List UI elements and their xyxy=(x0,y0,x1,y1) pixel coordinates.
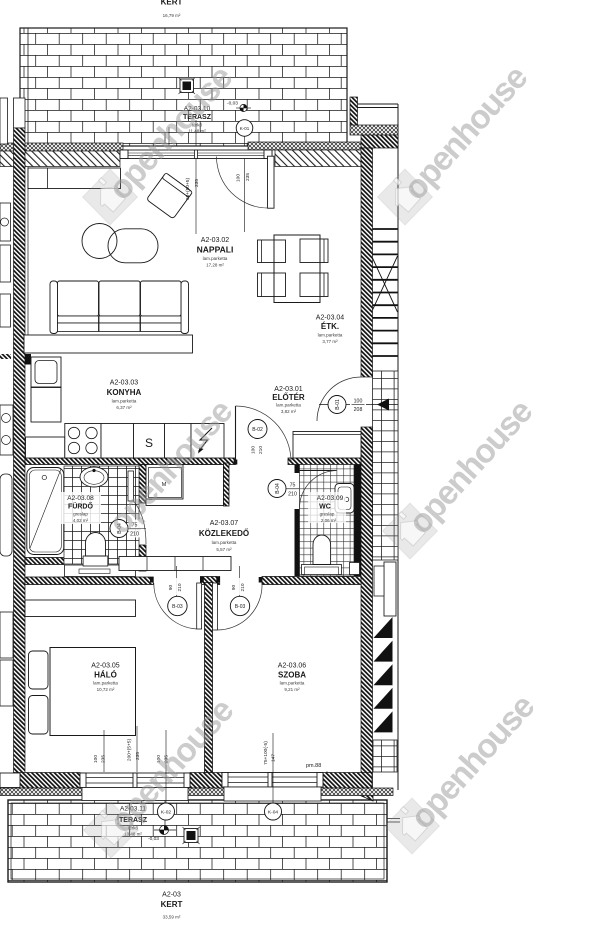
svg-text:lam.parketta: lam.parketta xyxy=(318,333,343,338)
svg-text:33,59 m²: 33,59 m² xyxy=(163,915,181,920)
svg-text:WC: WC xyxy=(319,504,331,511)
svg-text:lam.parketta: lam.parketta xyxy=(280,681,305,686)
svg-text:FÜRDŐ: FÜRDŐ xyxy=(68,502,93,511)
svg-text:A2-03.03: A2-03.03 xyxy=(110,380,139,387)
svg-text:A2-03.02: A2-03.02 xyxy=(201,237,230,244)
svg-text:A2-03.07: A2-03.07 xyxy=(210,520,239,527)
svg-text:235: 235 xyxy=(245,173,251,181)
svg-text:B-03: B-03 xyxy=(172,604,183,610)
svg-text:B-01: B-01 xyxy=(335,399,341,410)
svg-text:KERT: KERT xyxy=(161,0,183,7)
svg-text:90+(50+5): 90+(50+5) xyxy=(185,178,191,201)
svg-text:-0,03: -0,03 xyxy=(148,836,159,842)
svg-text:lam.parketta: lam.parketta xyxy=(276,403,301,408)
svg-text:K-04: K-04 xyxy=(268,810,278,816)
svg-text:SZOBA: SZOBA xyxy=(278,671,306,680)
svg-text:greslap: greslap xyxy=(320,512,335,517)
svg-text:17,28 m²: 17,28 m² xyxy=(206,263,224,268)
svg-text:A2-03.06: A2-03.06 xyxy=(278,663,307,670)
svg-text:-0,03: -0,03 xyxy=(227,101,238,107)
svg-text:200+(5+5): 200+(5+5) xyxy=(127,739,133,762)
svg-text:greslap: greslap xyxy=(73,512,88,517)
svg-text:HÁLÓ: HÁLÓ xyxy=(94,671,117,680)
svg-text:A2-03.09: A2-03.09 xyxy=(317,495,344,502)
svg-text:3,82 m²: 3,82 m² xyxy=(281,409,297,414)
svg-text:100: 100 xyxy=(354,399,363,405)
svg-text:B-02: B-02 xyxy=(252,427,263,433)
svg-text:lam.parketta: lam.parketta xyxy=(93,681,118,686)
svg-text:9,21 m²: 9,21 m² xyxy=(284,687,300,692)
svg-text:A2-03.04: A2-03.04 xyxy=(316,315,345,322)
svg-text:100: 100 xyxy=(251,446,257,454)
svg-text:235: 235 xyxy=(135,752,141,760)
svg-text:75: 75 xyxy=(290,483,296,489)
svg-text:3,77 m²: 3,77 m² xyxy=(322,339,338,344)
svg-text:90: 90 xyxy=(168,585,174,591)
svg-text:NAPPALI: NAPPALI xyxy=(197,245,234,255)
svg-text:A2-03.05: A2-03.05 xyxy=(91,663,120,670)
svg-text:210: 210 xyxy=(288,492,297,498)
svg-text:210: 210 xyxy=(258,446,264,454)
svg-text:2,06 m²: 2,06 m² xyxy=(321,518,337,523)
svg-text:6,37 m²: 6,37 m² xyxy=(116,405,132,410)
svg-text:100: 100 xyxy=(93,755,99,763)
svg-text:KERT: KERT xyxy=(161,900,183,909)
svg-text:16,79 m²: 16,79 m² xyxy=(163,13,181,18)
svg-text:lam.parketta: lam.parketta xyxy=(203,256,228,261)
svg-text:75+100(-5): 75+100(-5) xyxy=(263,741,269,765)
svg-text:KONYHA: KONYHA xyxy=(107,388,142,397)
svg-text:10,72 m²: 10,72 m² xyxy=(97,687,115,692)
svg-text:S: S xyxy=(145,436,153,450)
svg-text:100: 100 xyxy=(236,174,242,182)
svg-text:B-04: B-04 xyxy=(275,483,281,494)
svg-text:210: 210 xyxy=(240,583,246,591)
svg-text:210: 210 xyxy=(177,583,183,591)
svg-text:lam.parketta: lam.parketta xyxy=(212,540,237,545)
svg-text:147: 147 xyxy=(271,754,277,762)
svg-text:B-03: B-03 xyxy=(235,604,246,610)
svg-text:lam.parketta: lam.parketta xyxy=(112,399,137,404)
svg-text:pm.88: pm.88 xyxy=(306,763,321,769)
svg-text:K-02: K-02 xyxy=(161,810,171,816)
svg-text:90: 90 xyxy=(231,585,237,591)
svg-text:ELŐTÉR: ELŐTÉR xyxy=(272,393,305,402)
svg-text:235: 235 xyxy=(101,755,107,763)
svg-text:5,57 m²: 5,57 m² xyxy=(216,547,232,552)
svg-text:208: 208 xyxy=(354,407,363,413)
svg-text:A2-03.01: A2-03.01 xyxy=(274,386,303,393)
svg-text:KÖZLEKEDŐ: KÖZLEKEDŐ xyxy=(199,529,249,538)
svg-text:A2-03: A2-03 xyxy=(162,892,181,899)
svg-text:ÉTK.: ÉTK. xyxy=(321,322,339,331)
svg-text:235: 235 xyxy=(194,179,200,187)
svg-text:A2-03.08: A2-03.08 xyxy=(67,495,94,502)
svg-text:K-01: K-01 xyxy=(240,126,250,131)
svg-text:4,02 m²: 4,02 m² xyxy=(73,518,89,523)
